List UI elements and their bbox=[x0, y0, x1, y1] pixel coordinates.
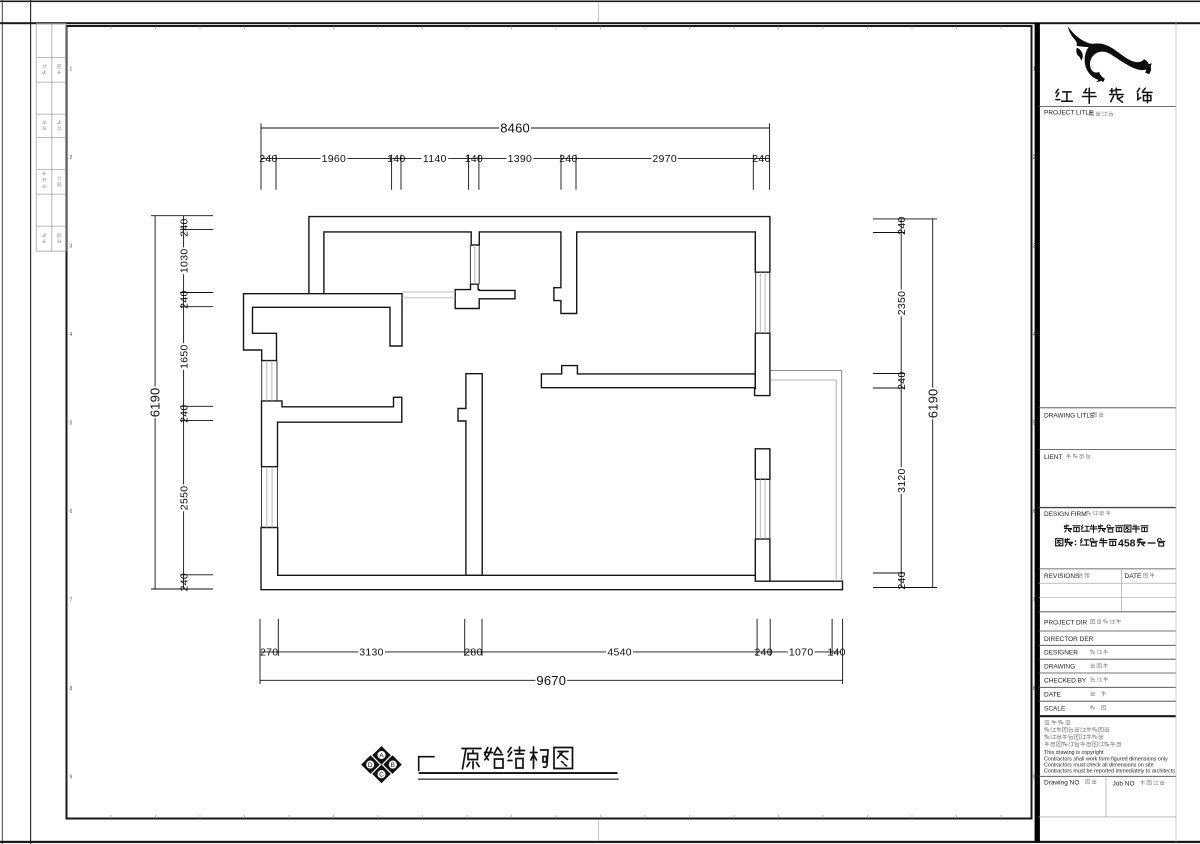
svg-text:4540: 4540 bbox=[607, 647, 632, 659]
svg-text:DRAWING LITLE: DRAWING LITLE bbox=[1044, 413, 1095, 420]
svg-text:140: 140 bbox=[465, 153, 483, 165]
svg-text:Contractors shall work form fi: Contractors shall work form figured dime… bbox=[1044, 757, 1168, 763]
svg-text:PROJECT DIR: PROJECT DIR bbox=[1044, 619, 1088, 626]
svg-text:CHECKED BY: CHECKED BY bbox=[1044, 677, 1087, 684]
svg-text:3120: 3120 bbox=[896, 468, 908, 493]
svg-text:LIENT: LIENT bbox=[1044, 454, 1062, 461]
svg-text:2: 2 bbox=[70, 155, 73, 161]
svg-text:7: 7 bbox=[70, 598, 73, 604]
svg-text:458: 458 bbox=[1118, 538, 1136, 550]
svg-text:B: B bbox=[391, 762, 395, 769]
svg-text:DRAWING: DRAWING bbox=[1044, 664, 1075, 671]
svg-text:1960: 1960 bbox=[322, 153, 347, 165]
svg-text:240: 240 bbox=[259, 153, 277, 165]
svg-text:240: 240 bbox=[178, 290, 190, 308]
svg-text:DESIGN FIRM: DESIGN FIRM bbox=[1044, 511, 1087, 518]
svg-text:270: 270 bbox=[260, 647, 278, 659]
svg-text:2970: 2970 bbox=[652, 153, 677, 165]
svg-text:8460: 8460 bbox=[500, 121, 530, 136]
svg-text:Job NO: Job NO bbox=[1113, 781, 1135, 788]
svg-text:3: 3 bbox=[70, 244, 73, 250]
svg-text:8: 8 bbox=[70, 686, 73, 692]
svg-text:C: C bbox=[379, 772, 384, 779]
svg-text:4: 4 bbox=[70, 332, 73, 338]
svg-text:240: 240 bbox=[896, 571, 908, 589]
svg-text:140: 140 bbox=[387, 153, 405, 165]
svg-text:1: 1 bbox=[70, 67, 73, 73]
svg-text:1070: 1070 bbox=[789, 647, 814, 659]
svg-text:Contractors must check all dim: Contractors must check all dimensions on… bbox=[1044, 763, 1154, 769]
svg-text:280: 280 bbox=[464, 647, 482, 659]
svg-text:D: D bbox=[368, 762, 373, 769]
svg-text:9670: 9670 bbox=[536, 673, 566, 688]
svg-text:DATE: DATE bbox=[1125, 573, 1143, 580]
svg-text:1030: 1030 bbox=[178, 249, 190, 274]
svg-text:DIRECTOR DER: DIRECTOR DER bbox=[1044, 636, 1094, 643]
svg-text:6: 6 bbox=[70, 509, 73, 515]
svg-text:SCALE: SCALE bbox=[1044, 706, 1066, 713]
svg-text:6190: 6190 bbox=[148, 388, 163, 418]
svg-text:240: 240 bbox=[896, 371, 908, 389]
svg-text:DATE: DATE bbox=[1044, 692, 1062, 699]
svg-text:6190: 6190 bbox=[925, 389, 940, 419]
svg-text:1650: 1650 bbox=[178, 344, 190, 369]
svg-text:2550: 2550 bbox=[178, 486, 190, 511]
svg-text:1140: 1140 bbox=[423, 153, 447, 165]
svg-text:REVISIONS: REVISIONS bbox=[1044, 573, 1080, 580]
svg-text:240: 240 bbox=[559, 153, 577, 165]
svg-text:3130: 3130 bbox=[359, 647, 384, 659]
svg-text:240: 240 bbox=[752, 153, 770, 165]
svg-text:240: 240 bbox=[178, 218, 190, 236]
svg-text:240: 240 bbox=[178, 404, 190, 422]
svg-text:PROJECT LITLE: PROJECT LITLE bbox=[1044, 110, 1094, 117]
svg-text:2350: 2350 bbox=[896, 291, 908, 316]
svg-text:5: 5 bbox=[70, 421, 73, 427]
svg-text:DESIGNER: DESIGNER bbox=[1044, 650, 1078, 657]
svg-text:Drawing NO: Drawing NO bbox=[1044, 780, 1079, 787]
svg-text:1390: 1390 bbox=[508, 153, 533, 165]
svg-text:This drawing is copyright: This drawing is copyright bbox=[1044, 750, 1104, 756]
svg-text:Contractors must be reported i: Contractors must be reported immediately… bbox=[1044, 769, 1175, 775]
svg-text:A: A bbox=[379, 752, 384, 759]
svg-text:9: 9 bbox=[70, 775, 73, 781]
